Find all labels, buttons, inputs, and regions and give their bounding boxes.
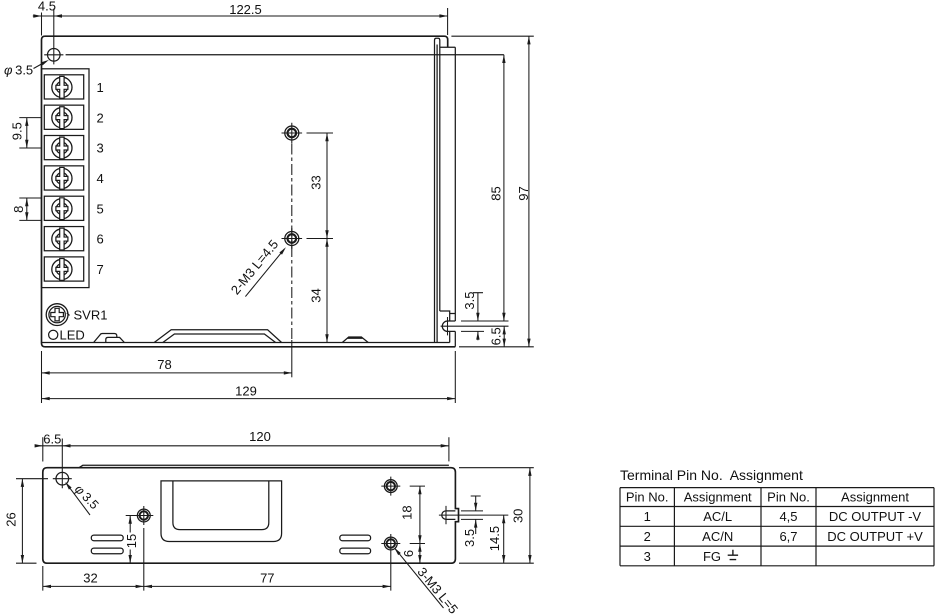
svg-text:5: 5 (97, 201, 104, 216)
svg-text:LED: LED (60, 328, 85, 343)
svg-text:33: 33 (309, 175, 324, 189)
svg-text:85: 85 (488, 186, 503, 200)
svg-text:9.5: 9.5 (10, 122, 25, 140)
svg-text:3: 3 (644, 549, 651, 564)
svg-text:77: 77 (260, 571, 274, 586)
svg-text:AC/L: AC/L (703, 509, 732, 524)
svg-text:97: 97 (516, 186, 531, 200)
svg-text:1: 1 (644, 509, 651, 524)
svg-text:120: 120 (249, 429, 271, 444)
svg-text:SVR1: SVR1 (74, 307, 108, 322)
svg-text:4,5: 4,5 (779, 509, 797, 524)
svg-text:18: 18 (399, 505, 414, 519)
svg-text:6: 6 (97, 232, 104, 247)
svg-text:3: 3 (97, 141, 104, 156)
svg-text:6: 6 (401, 550, 416, 557)
svg-text:6.5: 6.5 (488, 327, 503, 345)
svg-text:4.5: 4.5 (38, 0, 56, 14)
svg-text:2: 2 (644, 529, 651, 544)
svg-text:Pin No.: Pin No. (626, 489, 669, 504)
svg-text:Assignment: Assignment (684, 489, 752, 504)
svg-text:4: 4 (97, 171, 104, 186)
svg-text:129: 129 (235, 384, 257, 399)
svg-text:1: 1 (97, 80, 104, 95)
svg-text:2: 2 (97, 110, 104, 125)
svg-text:26: 26 (3, 512, 18, 526)
svg-text:DC OUTPUT -V: DC OUTPUT -V (829, 509, 922, 524)
svg-text:34: 34 (309, 288, 324, 302)
svg-text:30: 30 (511, 509, 526, 523)
svg-text:32: 32 (83, 571, 97, 586)
svg-text:15: 15 (124, 534, 139, 548)
svg-text:DC OUTPUT +V: DC OUTPUT +V (827, 529, 923, 544)
svg-text:6.5: 6.5 (43, 431, 61, 446)
svg-text:AC/N: AC/N (702, 529, 733, 544)
svg-text:7: 7 (97, 262, 104, 277)
svg-text:3.5: 3.5 (462, 529, 477, 547)
svg-text:φ 3.5: φ 3.5 (4, 63, 33, 78)
svg-text:3.5: 3.5 (462, 292, 477, 310)
svg-text:6,7: 6,7 (779, 529, 797, 544)
svg-text:78: 78 (157, 357, 171, 372)
svg-text:FG: FG (703, 549, 721, 564)
svg-text:Pin No.: Pin No. (767, 489, 810, 504)
svg-text:14.5: 14.5 (487, 526, 502, 551)
svg-text:122.5: 122.5 (229, 2, 262, 17)
svg-text:8: 8 (11, 206, 26, 213)
svg-text:Terminal Pin No. Assignment: Terminal Pin No. Assignment (620, 467, 803, 483)
svg-text:Assignment: Assignment (841, 489, 909, 504)
